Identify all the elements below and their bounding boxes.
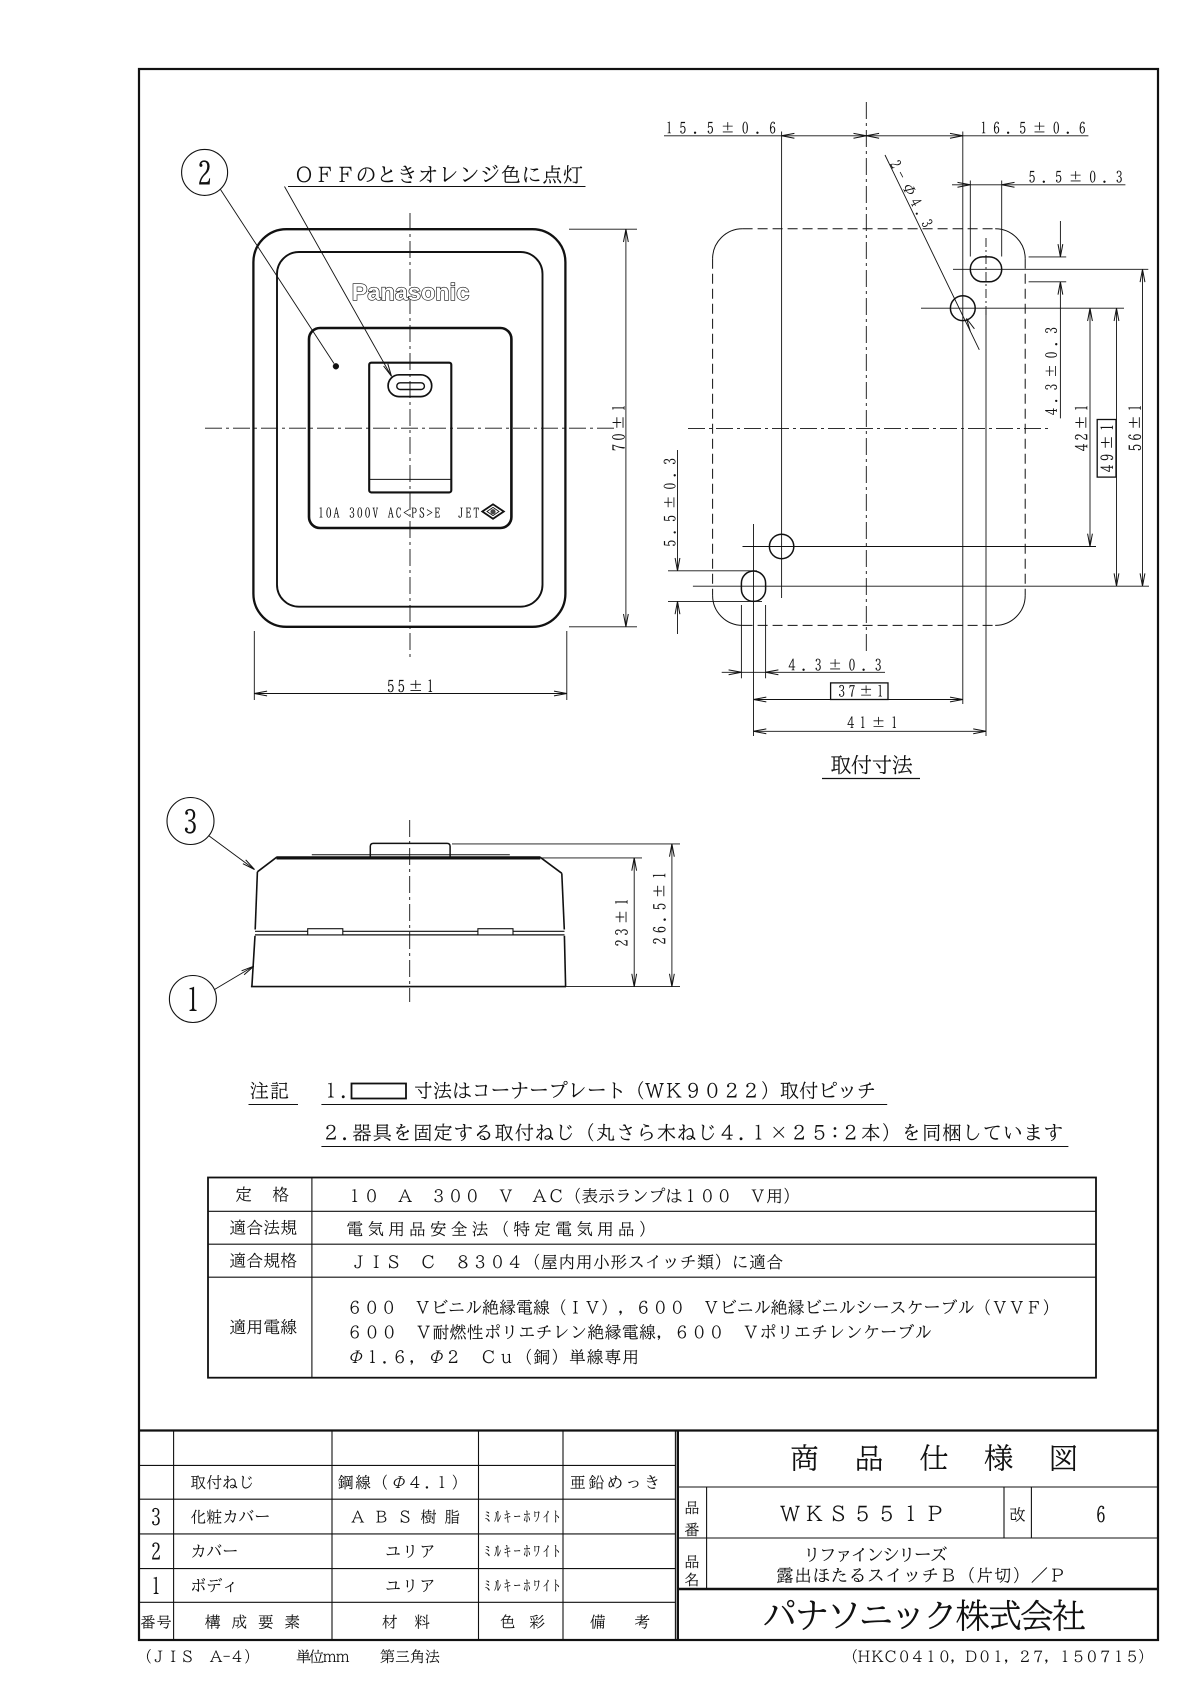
svg-text:Panasonic: Panasonic <box>352 279 470 305</box>
